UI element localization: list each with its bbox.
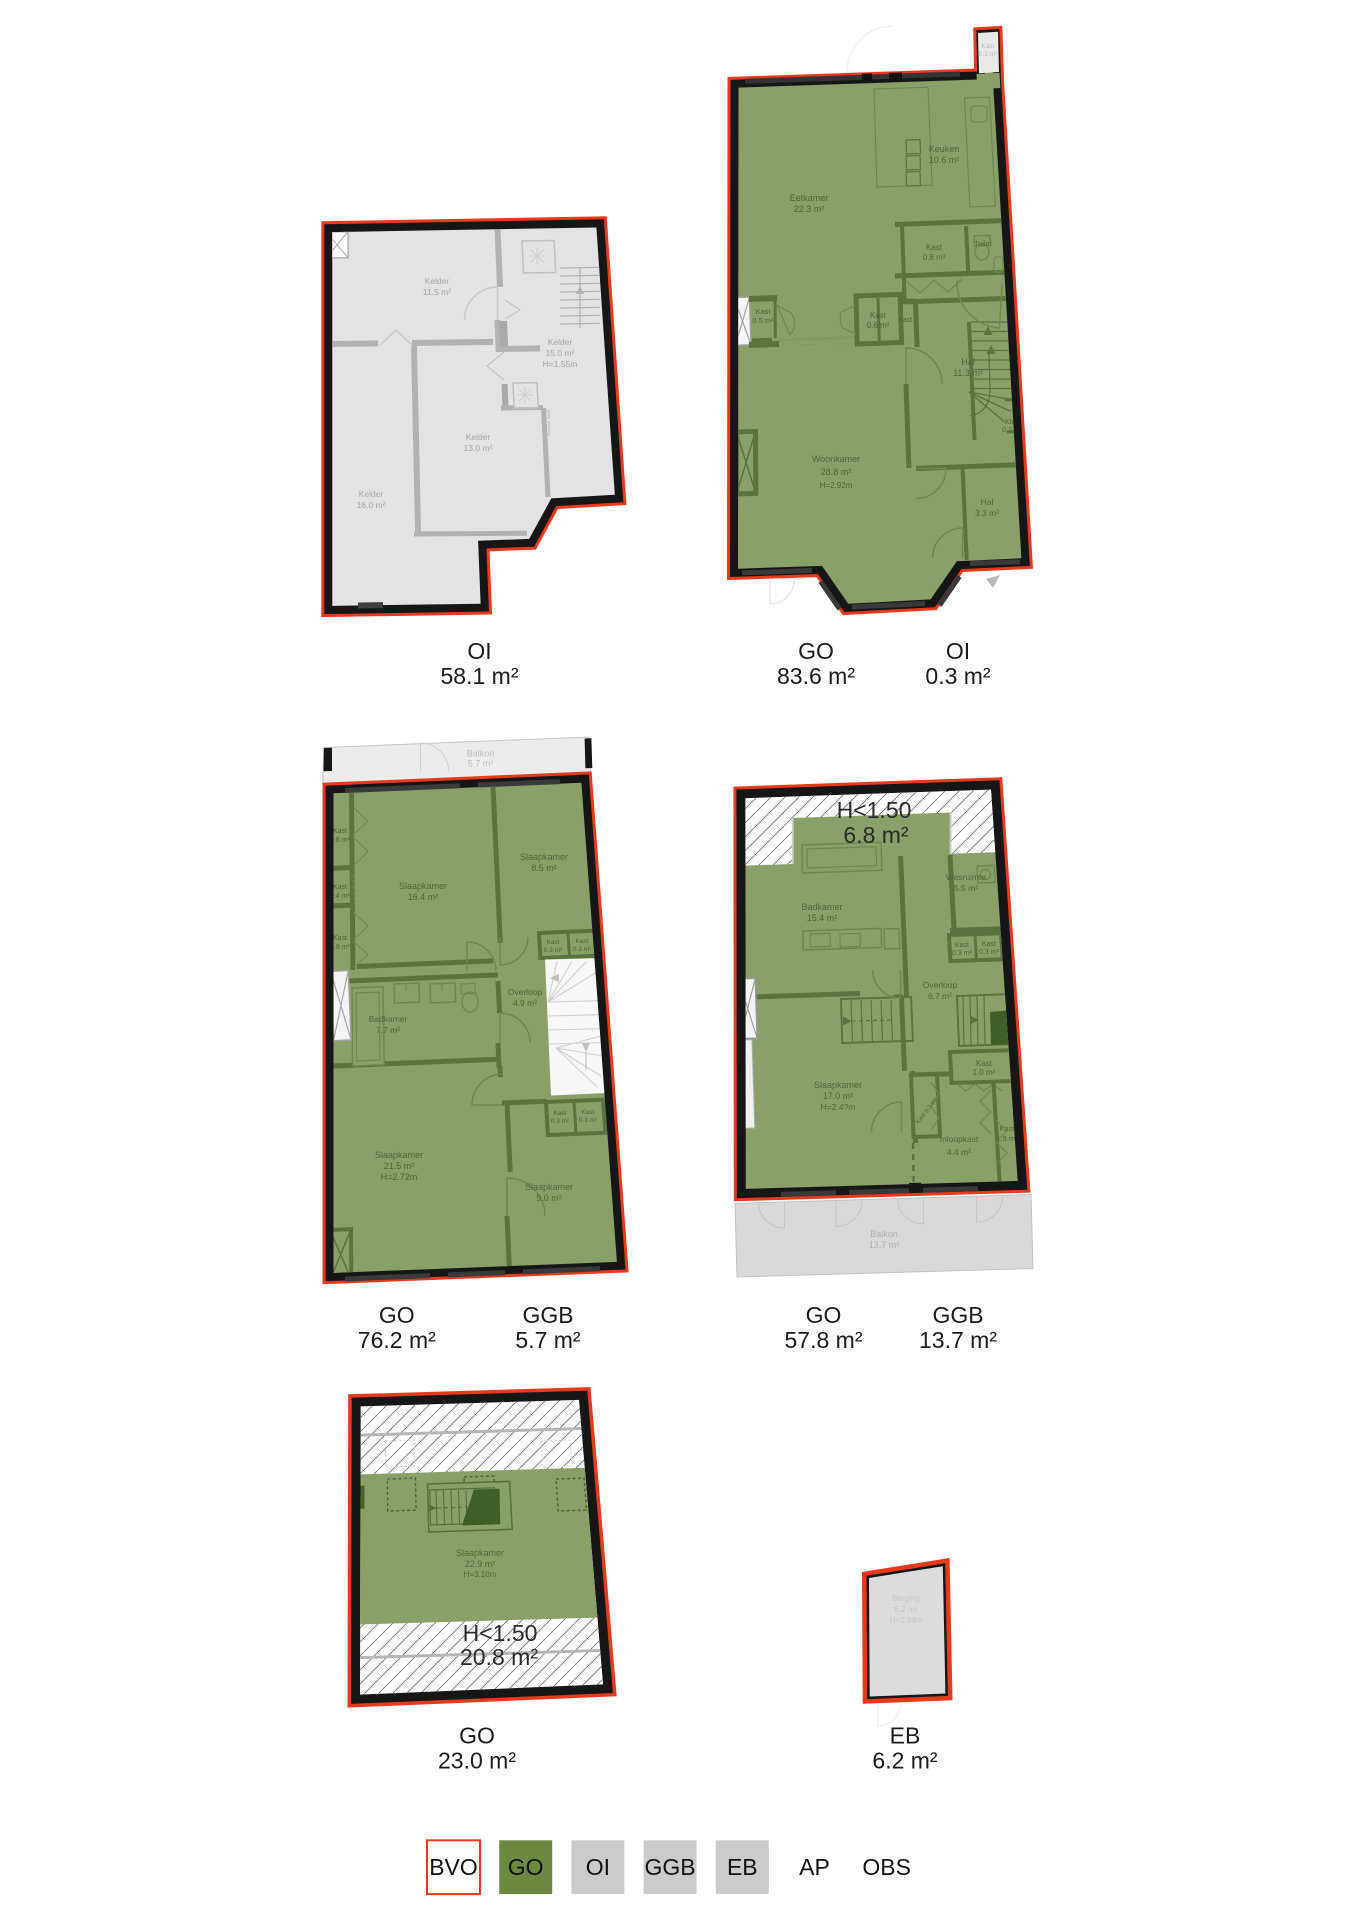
svg-text:Kelder: Kelder — [548, 337, 573, 347]
svg-text:5.7 m²: 5.7 m² — [515, 1327, 581, 1353]
svg-text:0.3 m²: 0.3 m² — [544, 947, 563, 954]
svg-text:Kast: Kast — [333, 884, 347, 891]
svg-text:22.9 m²: 22.9 m² — [465, 1559, 496, 1569]
svg-text:GO: GO — [459, 1723, 495, 1749]
svg-text:Slaapkamer: Slaapkamer — [456, 1548, 504, 1558]
svg-text:22.3 m²: 22.3 m² — [794, 204, 825, 214]
svg-text:Eetkamer: Eetkamer — [790, 193, 829, 203]
svg-text:BVO: BVO — [429, 1854, 478, 1880]
svg-text:0.5 m²: 0.5 m² — [752, 316, 774, 325]
svg-text:13.7 m²: 13.7 m² — [919, 1327, 997, 1353]
svg-text:0.3 m²: 0.3 m² — [925, 663, 991, 689]
svg-text:8.5 m²: 8.5 m² — [531, 863, 557, 873]
svg-text:Keuken: Keuken — [929, 144, 960, 154]
svg-text:15.4 m²: 15.4 m² — [807, 913, 838, 923]
svg-text:13.7 m²: 13.7 m² — [869, 1240, 900, 1250]
svg-text:GO: GO — [806, 1302, 842, 1328]
svg-text:Kast: Kast — [898, 317, 912, 324]
svg-text:H<1.50: H<1.50 — [463, 1620, 538, 1646]
svg-text:4.4 m²: 4.4 m² — [947, 1147, 971, 1157]
svg-text:EB: EB — [727, 1854, 758, 1880]
svg-text:H<1.50: H<1.50 — [837, 797, 912, 823]
svg-text:16.4 m²: 16.4 m² — [408, 892, 439, 902]
svg-text:Kast: Kast — [976, 1059, 993, 1068]
svg-text:Toilet: Toilet — [974, 239, 992, 248]
svg-text:Kast: Kast — [333, 828, 347, 835]
svg-text:Kast: Kast — [546, 939, 559, 946]
svg-text:Kelder: Kelder — [359, 489, 384, 499]
svg-text:H=2.34m: H=2.34m — [890, 1616, 923, 1625]
svg-text:Kelder: Kelder — [466, 432, 491, 442]
svg-text:15.0 m²: 15.0 m² — [546, 348, 575, 358]
svg-text:4.9 m²: 4.9 m² — [513, 998, 537, 1008]
svg-text:0.3 m²: 0.3 m² — [551, 1118, 570, 1125]
svg-text:Badkamer: Badkamer — [801, 902, 842, 912]
svg-text:5.5 m²: 5.5 m² — [954, 883, 978, 893]
svg-text:GGB: GGB — [932, 1302, 983, 1328]
svg-text:OI: OI — [467, 638, 491, 664]
svg-text:3.3 m²: 3.3 m² — [975, 508, 999, 518]
svg-text:Balkon: Balkon — [870, 1229, 898, 1239]
svg-text:0.3 m²: 0.3 m² — [573, 946, 592, 953]
svg-text:Kast: Kast — [581, 1109, 594, 1116]
svg-text:21.5 m²: 21.5 m² — [384, 1161, 415, 1171]
svg-text:0.6 m²: 0.6 m² — [867, 321, 890, 330]
svg-text:28.8 m²: 28.8 m² — [821, 467, 852, 477]
svg-text:76.2 m²: 76.2 m² — [358, 1327, 436, 1353]
svg-text:H=1.55m: H=1.55m — [543, 359, 578, 369]
svg-text:Overloop: Overloop — [923, 980, 958, 990]
svg-text:23.0 m²: 23.0 m² — [438, 1748, 516, 1774]
svg-text:Slaapkamer: Slaapkamer — [525, 1182, 573, 1192]
svg-text:GGB: GGB — [645, 1854, 696, 1880]
svg-text:Kast: Kast — [926, 243, 943, 252]
svg-text:Slaapkamer: Slaapkamer — [399, 881, 447, 891]
svg-text:58.1 m²: 58.1 m² — [441, 663, 519, 689]
svg-text:H=2.72m: H=2.72m — [381, 1172, 418, 1182]
svg-text:GO: GO — [379, 1302, 415, 1328]
svg-text:Balkon: Balkon — [467, 749, 495, 759]
svg-text:Slaapkamer: Slaapkamer — [520, 852, 568, 862]
svg-text:Badkamer: Badkamer — [369, 1014, 408, 1024]
svg-text:OBS: OBS — [862, 1854, 911, 1880]
svg-text:0.3 m²: 0.3 m² — [952, 950, 973, 957]
svg-text:7.7 m²: 7.7 m² — [376, 1025, 400, 1035]
svg-text:Wasruimte: Wasruimte — [946, 872, 987, 882]
svg-text:17.0 m²: 17.0 m² — [823, 1091, 854, 1101]
svg-text:Kast: Kast — [575, 938, 588, 945]
svg-text:OI: OI — [946, 638, 970, 664]
svg-text:EB: EB — [890, 1723, 921, 1749]
svg-text:Kast: Kast — [955, 942, 969, 949]
svg-text:Kast: Kast — [553, 1110, 566, 1117]
svg-text:11.5 m²: 11.5 m² — [423, 287, 451, 297]
svg-text:Slaapkamer: Slaapkamer — [375, 1150, 423, 1160]
svg-text:Kast: Kast — [999, 1124, 1015, 1133]
svg-text:Hal: Hal — [981, 497, 994, 507]
svg-text:83.6 m²: 83.6 m² — [777, 663, 855, 689]
svg-text:16.0 m²: 16.0 m² — [357, 500, 386, 510]
svg-text:Kelder: Kelder — [425, 276, 450, 286]
svg-text:11.3 m²: 11.3 m² — [953, 368, 983, 378]
svg-text:9.0 m²: 9.0 m² — [536, 1193, 562, 1203]
svg-text:1.0 m²: 1.0 m² — [973, 1068, 996, 1077]
svg-text:6.8 m²: 6.8 m² — [843, 822, 909, 848]
svg-text:0.3 m²: 0.3 m² — [979, 949, 1000, 956]
svg-text:H=2.4?m: H=2.4?m — [821, 1102, 856, 1112]
svg-text:Hal: Hal — [961, 357, 975, 367]
svg-text:0.3 m²: 0.3 m² — [579, 1117, 598, 1124]
svg-text:Berging: Berging — [892, 1594, 920, 1603]
svg-text:AP: AP — [799, 1854, 830, 1880]
svg-text:6.2 m²: 6.2 m² — [872, 1748, 938, 1774]
svg-text:Slaapkamer: Slaapkamer — [814, 1080, 862, 1090]
svg-text:Kast: Kast — [755, 307, 771, 316]
svg-text:Kast: Kast — [981, 43, 994, 50]
svg-text:6.2 m²: 6.2 m² — [895, 1605, 918, 1614]
svg-text:10.6 m²: 10.6 m² — [929, 155, 960, 165]
svg-text:57.8 m²: 57.8 m² — [785, 1327, 863, 1353]
svg-text:Kast: Kast — [982, 941, 996, 948]
svg-text:13.0 m²: 13.0 m² — [464, 443, 493, 453]
svg-text:0.8 m²: 0.8 m² — [923, 253, 946, 262]
svg-text:GGB: GGB — [522, 1302, 573, 1328]
svg-text:OI: OI — [586, 1854, 610, 1880]
svg-text:H=2.92m: H=2.92m — [820, 481, 853, 490]
svg-text:Overloop: Overloop — [508, 987, 543, 997]
svg-text:0.3 m²: 0.3 m² — [979, 51, 998, 58]
svg-text:H=3.10m: H=3.10m — [464, 1570, 497, 1579]
svg-text:Kast: Kast — [333, 935, 347, 942]
svg-text:Kast: Kast — [870, 311, 887, 320]
svg-text:20.8 m²: 20.8 m² — [460, 1644, 538, 1670]
svg-text:6.7 m²: 6.7 m² — [928, 991, 952, 1001]
svg-text:Woonkamer: Woonkamer — [812, 454, 860, 464]
svg-text:Inloopkast: Inloopkast — [940, 1134, 979, 1144]
svg-text:GO: GO — [508, 1854, 544, 1880]
svg-text:5.7 m²: 5.7 m² — [468, 759, 494, 769]
svg-text:GO: GO — [798, 638, 834, 664]
